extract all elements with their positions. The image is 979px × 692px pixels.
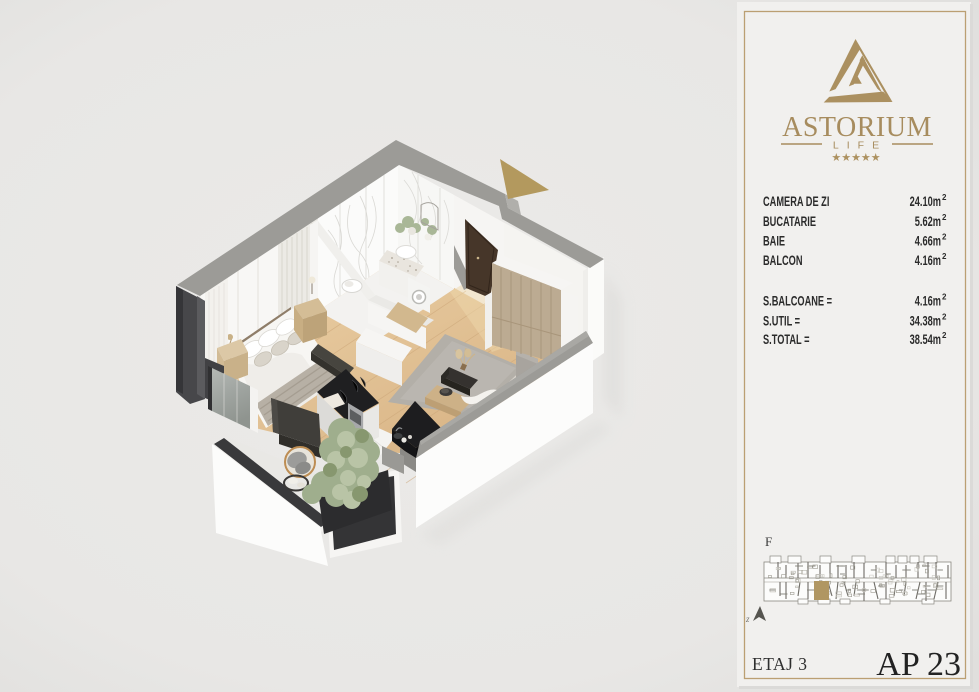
svg-text:CAMERA DE ZI: CAMERA DE ZI (763, 193, 829, 210)
svg-text:4.16m: 4.16m (915, 293, 941, 310)
svg-text:F: F (765, 534, 772, 549)
svg-text:24.10m: 24.10m (910, 193, 941, 210)
svg-text:4.66m: 4.66m (915, 233, 941, 250)
svg-text:ASTORIUM: ASTORIUM (782, 112, 932, 143)
svg-text:2: 2 (942, 213, 947, 222)
svg-text:LIFE: LIFE (833, 140, 887, 152)
svg-text:38.54m: 38.54m (910, 331, 941, 348)
svg-text:2: 2 (942, 193, 947, 202)
svg-text:2: 2 (942, 233, 947, 242)
svg-text:z: z (745, 614, 750, 624)
svg-text:4.16m: 4.16m (915, 252, 941, 269)
svg-text:S.TOTAL =: S.TOTAL = (763, 331, 810, 348)
svg-text:★★★★★: ★★★★★ (831, 152, 880, 164)
svg-text:S.UTIL =: S.UTIL = (763, 313, 800, 330)
svg-text:ETAJ 3: ETAJ 3 (752, 654, 808, 674)
svg-text:5.62m: 5.62m (915, 213, 941, 230)
svg-text:34.38m: 34.38m (910, 313, 941, 330)
svg-text:BALCON: BALCON (763, 252, 803, 269)
svg-text:2: 2 (942, 293, 947, 302)
svg-text:BUCATARIE: BUCATARIE (763, 213, 816, 230)
svg-text:S.BALCOANE =: S.BALCOANE = (763, 293, 832, 310)
svg-text:AP 23: AP 23 (876, 646, 961, 683)
svg-text:BAIE: BAIE (763, 233, 785, 250)
svg-text:2: 2 (942, 252, 947, 261)
svg-text:2: 2 (942, 331, 947, 340)
svg-text:2: 2 (942, 313, 947, 322)
